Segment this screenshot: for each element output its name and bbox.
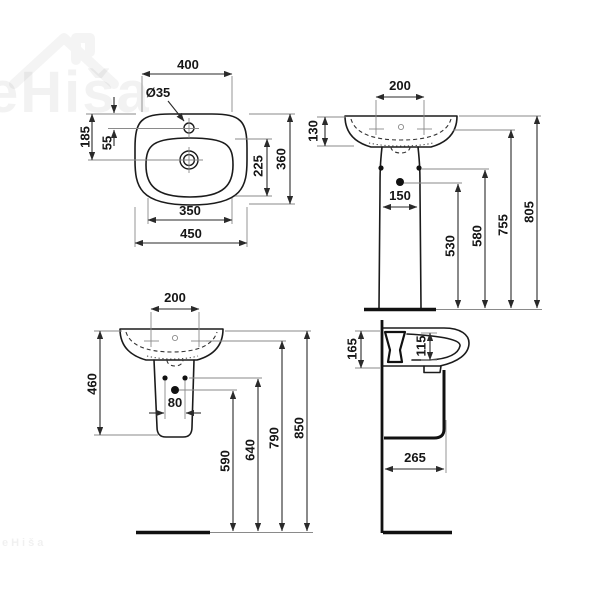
sv-mount-section (385, 332, 405, 362)
watermark: eHiša eHiša (0, 38, 151, 549)
dim-label-400: 400 (177, 57, 199, 72)
front-semi-pedestal-view: 200 460 80 590 640 790 (85, 290, 314, 533)
fp-basin (345, 100, 457, 153)
drawing-canvas: eHiša eHiša 400 Ø35 185 (0, 0, 600, 600)
dim-label-165: 165 (345, 338, 360, 360)
side-view: 165 115 265 (345, 320, 470, 533)
dim-label-185: 185 (78, 126, 93, 148)
dim-label-360: 360 (274, 148, 289, 170)
fp-basin-outline (345, 116, 457, 147)
sv-semi-pedestal (384, 370, 444, 438)
fs-dimensions: 200 460 80 590 640 790 (85, 290, 312, 531)
fp-fixing-hole-right (416, 165, 421, 170)
dim-label-530: 530 (443, 235, 458, 257)
fp-pedestal-right-edge (418, 147, 421, 308)
dim-label-55: 55 (100, 136, 115, 150)
dim-label-590: 590 (218, 450, 233, 472)
fp-pedestal-left-edge (379, 147, 382, 308)
fp-dimensions: 200 130 150 530 580 755 805 (306, 78, 542, 308)
watermark-text: eHiša (0, 60, 151, 125)
dim-label-450: 450 (180, 226, 202, 241)
dim-label-460: 460 (85, 373, 100, 395)
dim-label-tap-diameter: Ø35 (146, 85, 171, 100)
watermark-corner-text: eHiša (2, 537, 46, 549)
dim-label-580: 580 (470, 225, 485, 247)
fp-drain-hole (396, 178, 404, 186)
fs-fixing-hole-right (182, 375, 187, 380)
fp-fixing-hole-left (378, 165, 383, 170)
dim-label-fs-200: 200 (164, 290, 186, 305)
dim-label-150: 150 (389, 188, 411, 203)
fp-pedestal (378, 147, 421, 308)
dim-label-265: 265 (404, 450, 426, 465)
sv-pedestal-profile (384, 370, 444, 438)
fs-fixing-hole-left (162, 375, 167, 380)
dim-label-790: 790 (267, 427, 282, 449)
plan-basin (88, 114, 247, 205)
fs-drain-hole (171, 386, 179, 394)
dim-label-115: 115 (414, 336, 429, 357)
dim-label-80: 80 (168, 395, 182, 410)
fp-drain-hidden (391, 147, 410, 153)
fs-basin (120, 312, 223, 360)
dim-label-130: 130 (306, 120, 321, 142)
technical-drawing-sheet: eHiša eHiša 400 Ø35 185 (0, 0, 600, 600)
front-pedestal-view: 200 130 150 530 580 755 805 (306, 78, 543, 310)
dim-label-805: 805 (522, 201, 537, 223)
fs-drain-hidden (167, 360, 183, 366)
dim-label-755: 755 (496, 214, 511, 236)
dim-label-350: 350 (179, 203, 201, 218)
dim-label-850: 850 (292, 417, 307, 439)
dim-label-225: 225 (251, 155, 266, 177)
tap-leader-line (168, 101, 184, 121)
dim-label-640: 640 (243, 439, 258, 461)
dim-label-fp-200: 200 (389, 78, 411, 93)
